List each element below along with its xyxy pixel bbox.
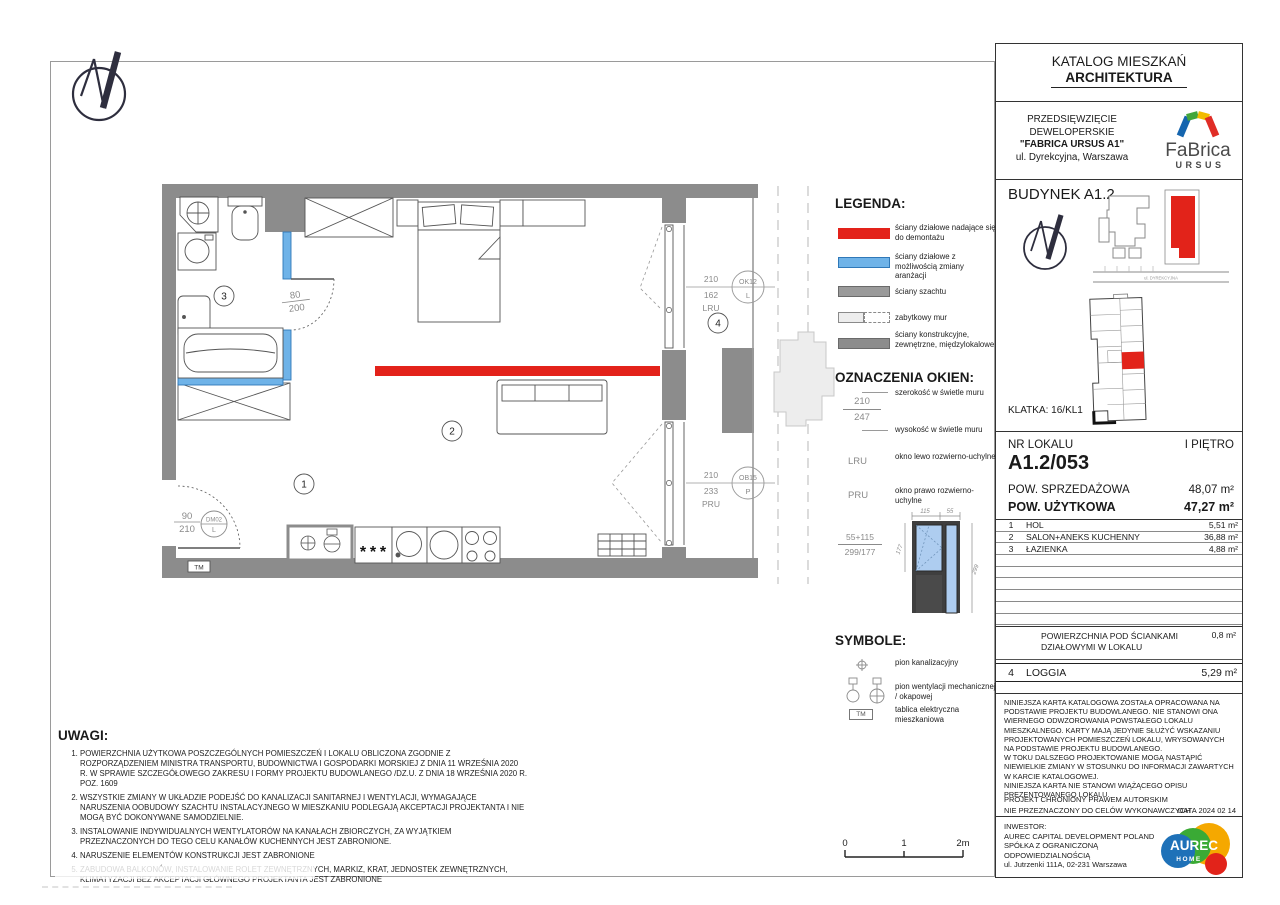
room-no: 3 <box>996 544 1026 554</box>
loggia-area: 5,29 m² <box>1167 667 1242 679</box>
lru-code: LRU <box>848 456 867 467</box>
investor-label: INWESTOR: <box>1004 822 1159 832</box>
svg-text:URSUS: URSUS <box>1175 160 1224 170</box>
fraction-line <box>843 409 881 410</box>
red-demountable-wall <box>375 366 660 376</box>
room-name: ŁAZIENKA <box>1026 544 1176 554</box>
window-height-number: 247 <box>845 412 879 423</box>
svg-text:162: 162 <box>704 290 718 300</box>
empty-row <box>996 567 1242 579</box>
room-row: 1 HOL 5,51 m² <box>996 520 1242 532</box>
svg-text:1: 1 <box>901 838 906 849</box>
historic-wall-fragment <box>774 332 834 426</box>
svg-text:DM02: DM02 <box>206 518 223 524</box>
fraction-line <box>838 544 882 545</box>
svg-text:LRU: LRU <box>702 303 719 313</box>
investor-name2: SPÓŁKA Z OGRANICZONĄ ODPOWIEDZIALNOŚCIĄ <box>1004 841 1159 860</box>
project-line: PRZEDSIĘWZIĘCIE <box>998 114 1146 127</box>
bed <box>418 202 500 322</box>
balcony-door-ob15 <box>612 420 686 547</box>
symbols-title: SYMBOLE: <box>835 633 906 648</box>
pru-label: okno prawo rozwierno-uchylne <box>895 486 997 505</box>
window-ok12 <box>640 223 686 350</box>
radiator <box>598 534 646 556</box>
note-item: POWIERZCHNIA UŻYTKOWA POSZCZEGÓLNYCH POM… <box>80 749 528 789</box>
corner-washbasin <box>180 197 218 232</box>
symbol-label: tablica elektryczna mieszkaniowa <box>895 705 997 724</box>
architect-logo <box>66 44 132 128</box>
legend-item-label: ściany działowe z możliwością zmiany ara… <box>895 252 997 281</box>
svg-text:80: 80 <box>289 289 301 301</box>
kitchen-dishwasher <box>427 527 462 563</box>
toilet <box>228 197 262 240</box>
legend-swatch-structural <box>838 338 890 349</box>
nightstand-right <box>500 200 523 226</box>
legend-swatch-historic <box>838 312 864 323</box>
empty-row <box>996 555 1242 567</box>
sofa <box>497 380 607 434</box>
kitchen-fridge: * * * <box>355 527 392 563</box>
partition-area-box: POWIERZCHNIA POD ŚCIANKAMI DZIAŁOWYMI W … <box>996 626 1242 660</box>
investor-address: ul. Jutrzenki 111A, 02-231 Warszawa <box>1004 860 1159 870</box>
svg-text:299: 299 <box>971 563 981 576</box>
svg-text:*: * <box>360 544 367 561</box>
room-number-4: 4 <box>715 319 721 330</box>
loggia-name: LOGGIA <box>1026 667 1167 679</box>
room-area: 4,88 m² <box>1176 544 1242 554</box>
legend-item-label: zabytkowy mur <box>895 313 997 323</box>
window-markings-title: OZNACZENIA OKIEN: <box>835 370 974 385</box>
svg-text:FaBrica: FaBrica <box>1165 140 1231 161</box>
unit-box: NR LOKALU I PIĘTRO A1.2/053 POW. SPRZEDA… <box>996 431 1242 519</box>
room-row: 2 SALON+ANEKS KUCHENNY 36,88 m² <box>996 532 1242 544</box>
copyright-line: PROJEKT CHRONIONY PRAWEM AUTORSKIM <box>1004 795 1168 804</box>
nightstand-left <box>397 200 418 226</box>
building-box: BUDYNEK A1.2 <box>996 179 1242 431</box>
svg-text:55: 55 <box>947 509 954 515</box>
highlighted-building <box>1171 196 1195 258</box>
date-label: DATA 2024 02 14 <box>1178 806 1236 815</box>
watermark-artifact <box>42 886 232 888</box>
svg-text:115: 115 <box>920 509 930 515</box>
loggia-row: 4 LOGGIA 5,29 m² <box>996 663 1242 682</box>
room-number-1: 1 <box>301 480 307 491</box>
project-name: "FABRICA URSUS A1" <box>998 139 1146 152</box>
partition-area-label: POWIERZCHNIA POD ŚCIANKAMI DZIAŁOWYMI W … <box>1041 631 1181 652</box>
unit-number: A1.2/053 <box>1008 452 1234 475</box>
room-area: 5,51 m² <box>1176 520 1242 530</box>
svg-text:OB15: OB15 <box>739 475 757 482</box>
watermark-smudge <box>55 866 315 879</box>
window-detail-label-top: 55+115 <box>836 532 884 542</box>
pru-code: PRU <box>848 490 868 501</box>
entry-door-code: DM02 L <box>201 511 227 537</box>
svg-text:*: * <box>380 544 387 561</box>
svg-text:PRU: PRU <box>702 499 720 509</box>
usable-area-label: POW. UŻYTKOWA <box>1008 500 1116 514</box>
floor-plan: 80 200 90 210 DM02 L TM <box>150 172 850 602</box>
window-detail-drawing: 115 55 177 299 <box>892 505 982 620</box>
aurec-home-logo: AUREC HOME <box>1156 820 1236 877</box>
legend-swatch-shaft <box>838 286 890 297</box>
svg-text:TM: TM <box>194 565 203 572</box>
lru-label: okno lewo rozwierno-uchylne <box>895 452 997 462</box>
svg-text:177: 177 <box>896 543 905 555</box>
kitchen-hob <box>462 527 500 563</box>
catalog-header: KATALOG MIESZKAŃ ARCHITEKTURA <box>996 44 1242 101</box>
highlighted-unit <box>1122 351 1145 369</box>
window-width-label: szerokość w świetle muru <box>895 388 997 398</box>
investor-name: AUREC CAPITAL DEVELOPMENT POLAND <box>1004 832 1159 842</box>
room-row: 3 ŁAZIENKA 4,88 m² <box>996 543 1242 555</box>
sewage-riser-icon <box>848 656 876 674</box>
room-name: SALON+ANEKS KUCHENNY <box>1026 532 1176 542</box>
washing-machine <box>178 233 216 270</box>
bathtub <box>178 328 283 378</box>
svg-text:*: * <box>370 544 377 561</box>
staircase-label: KLATKA: 16/KL1 <box>1008 405 1083 416</box>
usage-line: NIE PRZEZNACZONY DO CELÓW WYKONAWCZYCH <box>1004 806 1191 815</box>
window-detail-label-bottom: 299/177 <box>836 547 884 557</box>
bedroom-cabinet <box>523 200 585 226</box>
legend-swatch-red <box>838 228 890 239</box>
unit-floor: I PIĘTRO <box>1185 439 1234 451</box>
unit-number-label: NR LOKALU <box>1008 439 1073 451</box>
room-no: 1 <box>996 520 1026 530</box>
electrical-panel-tm: TM <box>188 561 210 572</box>
kitchen-shaft <box>288 526 352 560</box>
note-item: INSTALOWANIE INDYWIDUALNYCH WENTYLATORÓW… <box>80 827 528 847</box>
hall-wardrobe <box>178 383 290 420</box>
empty-row <box>996 578 1242 590</box>
symbol-label: pion kanalizacyjny <box>895 658 997 668</box>
sale-area-label: POW. SPRZEDAŻOWA <box>1008 484 1130 496</box>
window-ok12-label: 210 162 LRU OK12 L <box>686 271 775 313</box>
entry-door-label: 90 210 <box>174 511 200 535</box>
svg-text:P: P <box>745 487 750 496</box>
window-height-label: wysokość w świetle muru <box>895 425 997 435</box>
disclaimer-box: NINIEJSZA KARTA KATALOGOWA ZOSTAŁA OPRAC… <box>996 693 1242 816</box>
bathroom-door-label: 80 200 <box>281 288 312 315</box>
empty-row <box>996 590 1242 602</box>
svg-text:AUREC: AUREC <box>1170 838 1218 853</box>
empty-row <box>996 602 1242 614</box>
legend-swatch-blue <box>838 257 890 268</box>
investor-box: INWESTOR: AUREC CAPITAL DEVELOPMENT POLA… <box>996 816 1242 879</box>
notes-section: UWAGI: POWIERZCHNIA UŻYTKOWA POSZCZEGÓLN… <box>58 728 528 889</box>
bracket-top <box>862 392 888 393</box>
window-width-number: 210 <box>845 396 879 407</box>
kitchen-sink <box>392 527 427 563</box>
svg-text:210: 210 <box>179 524 195 535</box>
svg-text:OK12: OK12 <box>739 279 757 286</box>
svg-text:210: 210 <box>704 274 718 284</box>
svg-text:0: 0 <box>842 838 847 849</box>
legend-item-label: ściany szachtu <box>895 287 997 297</box>
svg-text:200: 200 <box>288 302 305 315</box>
room-no: 2 <box>996 532 1026 542</box>
legend-title: LEGENDA: <box>835 196 906 211</box>
catalog-title: KATALOG MIESZKAŃ <box>996 54 1242 69</box>
partition-area-value: 0,8 m² <box>1212 630 1236 640</box>
legend-swatch-historic-dashed <box>864 312 890 323</box>
balcony-door-ob15-label: 210 233 PRU OB15 P <box>686 467 775 509</box>
rooms-table: 1 HOL 5,51 m² 2 SALON+ANEKS KUCHENNY 36,… <box>996 519 1242 626</box>
architect-logo-small <box>1018 208 1074 274</box>
project-line: DEWELOPERSKIE <box>998 127 1146 140</box>
fabrica-ursus-logo: FaBrica URSUS <box>1159 110 1237 174</box>
room-area: 36,88 m² <box>1176 532 1242 542</box>
svg-text:233: 233 <box>704 486 718 496</box>
room-name: HOL <box>1026 520 1176 530</box>
catalog-subtitle: ARCHITEKTURA <box>1051 69 1186 88</box>
street-label: ul. DYREKCYJNA <box>1144 276 1178 281</box>
empty-row <box>996 614 1242 626</box>
room-number-2: 2 <box>449 427 455 438</box>
svg-text:L: L <box>212 527 216 534</box>
project-box: PRZEDSIĘWZIĘCIE DEWELOPERSKIE "FABRICA U… <box>996 101 1242 179</box>
note-item: NARUSZENIE ELEMENTÓW KONSTRUKCJI JEST ZA… <box>80 851 528 861</box>
usable-area-value: 47,27 m² <box>1184 500 1234 514</box>
sale-area-value: 48,07 m² <box>1189 484 1234 496</box>
note-item: WSZYSTKIE ZMIANY W UKŁADZIE PODEJŚĆ DO K… <box>80 793 528 823</box>
svg-text:2m: 2m <box>956 838 969 849</box>
title-block: KATALOG MIESZKAŃ ARCHITEKTURA PRZEDSIĘWZ… <box>995 43 1243 878</box>
notes-list: POWIERZCHNIA UŻYTKOWA POSZCZEGÓLNYCH POM… <box>58 749 528 885</box>
loggia-no: 4 <box>996 667 1026 679</box>
svg-text:L: L <box>746 291 750 300</box>
legend-item-label: ściany konstrukcyjne, zewnętrzne, między… <box>895 330 997 349</box>
svg-text:HOME: HOME <box>1176 856 1202 863</box>
site-plan: ul. DYREKCYJNA <box>1091 188 1231 293</box>
room-number-3: 3 <box>221 292 227 303</box>
ventilation-riser-icon <box>843 676 889 706</box>
project-address: ul. Dyrekcyjna, Warszawa <box>998 152 1146 165</box>
shaft-top <box>305 198 393 237</box>
legend-item-label: ściany działowe nadające się do demontaż… <box>895 223 997 242</box>
scale-bar: 0 1 2m <box>815 834 980 864</box>
catalog-sheet: 80 200 90 210 DM02 L TM <box>0 0 1280 905</box>
electrical-panel-icon: TM <box>849 709 873 720</box>
bracket-bottom <box>862 430 888 431</box>
notes-title: UWAGI: <box>58 728 528 743</box>
symbol-label: pion wentylacji mechanicznej / okapowej <box>895 682 997 701</box>
svg-text:90: 90 <box>182 511 193 522</box>
building-floor-plan <box>1078 292 1178 432</box>
disclaimer-text: NINIEJSZA KARTA KATALOGOWA ZOSTAŁA OPRAC… <box>1004 698 1236 799</box>
svg-text:210: 210 <box>704 470 718 480</box>
